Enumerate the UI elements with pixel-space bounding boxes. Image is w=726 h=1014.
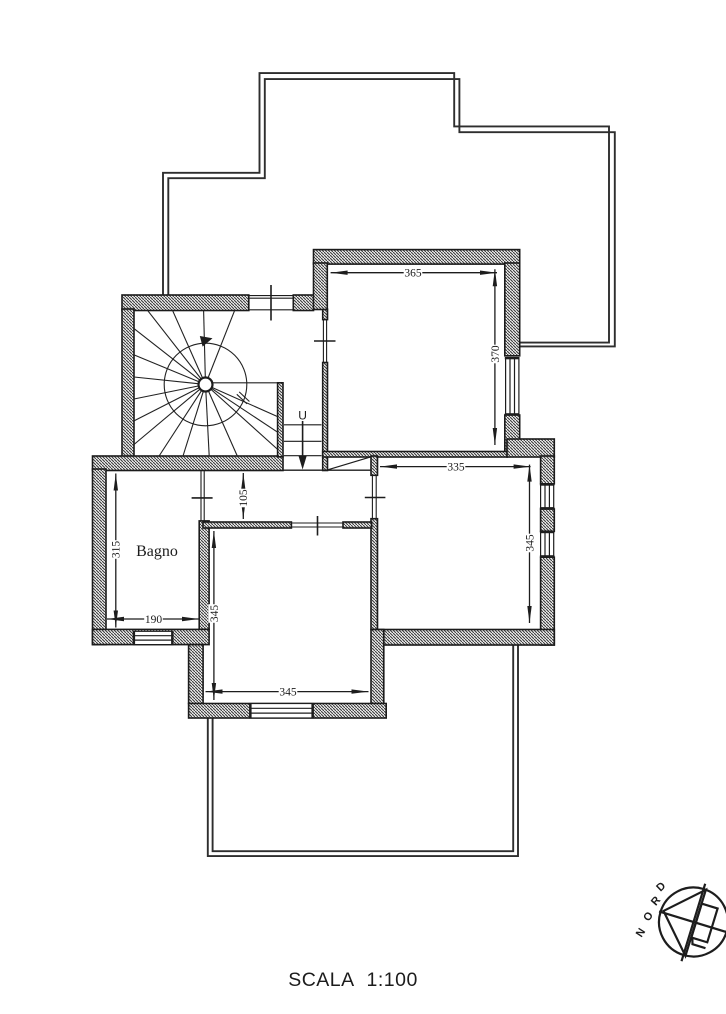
svg-text:345: 345 [524, 534, 536, 552]
svg-text:N: N [634, 926, 648, 939]
svg-text:345: 345 [279, 687, 297, 699]
svg-text:D: D [654, 880, 668, 894]
svg-text:335: 335 [447, 462, 465, 474]
svg-text:105: 105 [238, 489, 250, 507]
svg-text:U: U [298, 409, 307, 423]
svg-text:365: 365 [404, 268, 422, 280]
svg-text:O: O [641, 909, 656, 923]
svg-text:345: 345 [209, 605, 221, 623]
svg-text:370: 370 [490, 345, 502, 363]
svg-text:Bagno: Bagno [136, 543, 178, 560]
svg-text:R: R [649, 894, 663, 908]
svg-text:315: 315 [111, 541, 123, 559]
svg-text:190: 190 [145, 614, 163, 626]
svg-text:SCALA 1:100: SCALA 1:100 [288, 969, 418, 991]
